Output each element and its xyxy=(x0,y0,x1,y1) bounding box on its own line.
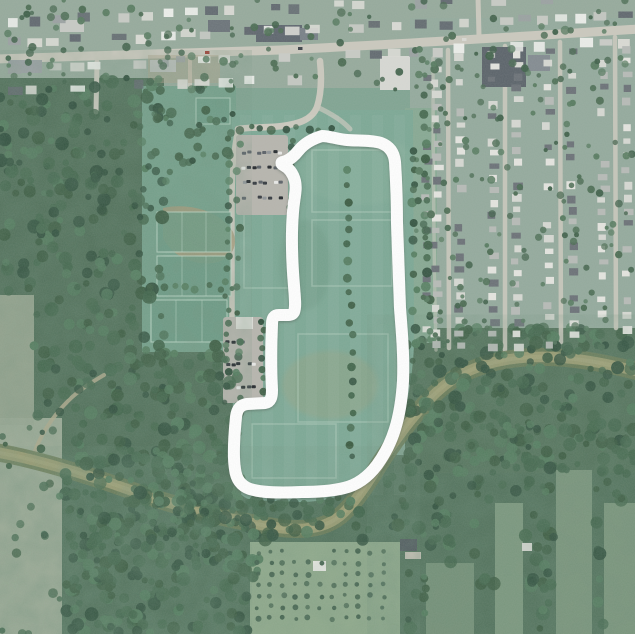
satellite-image xyxy=(0,0,635,634)
satellite-grain-overlay xyxy=(0,0,635,634)
map-viewport[interactable] xyxy=(0,0,635,634)
